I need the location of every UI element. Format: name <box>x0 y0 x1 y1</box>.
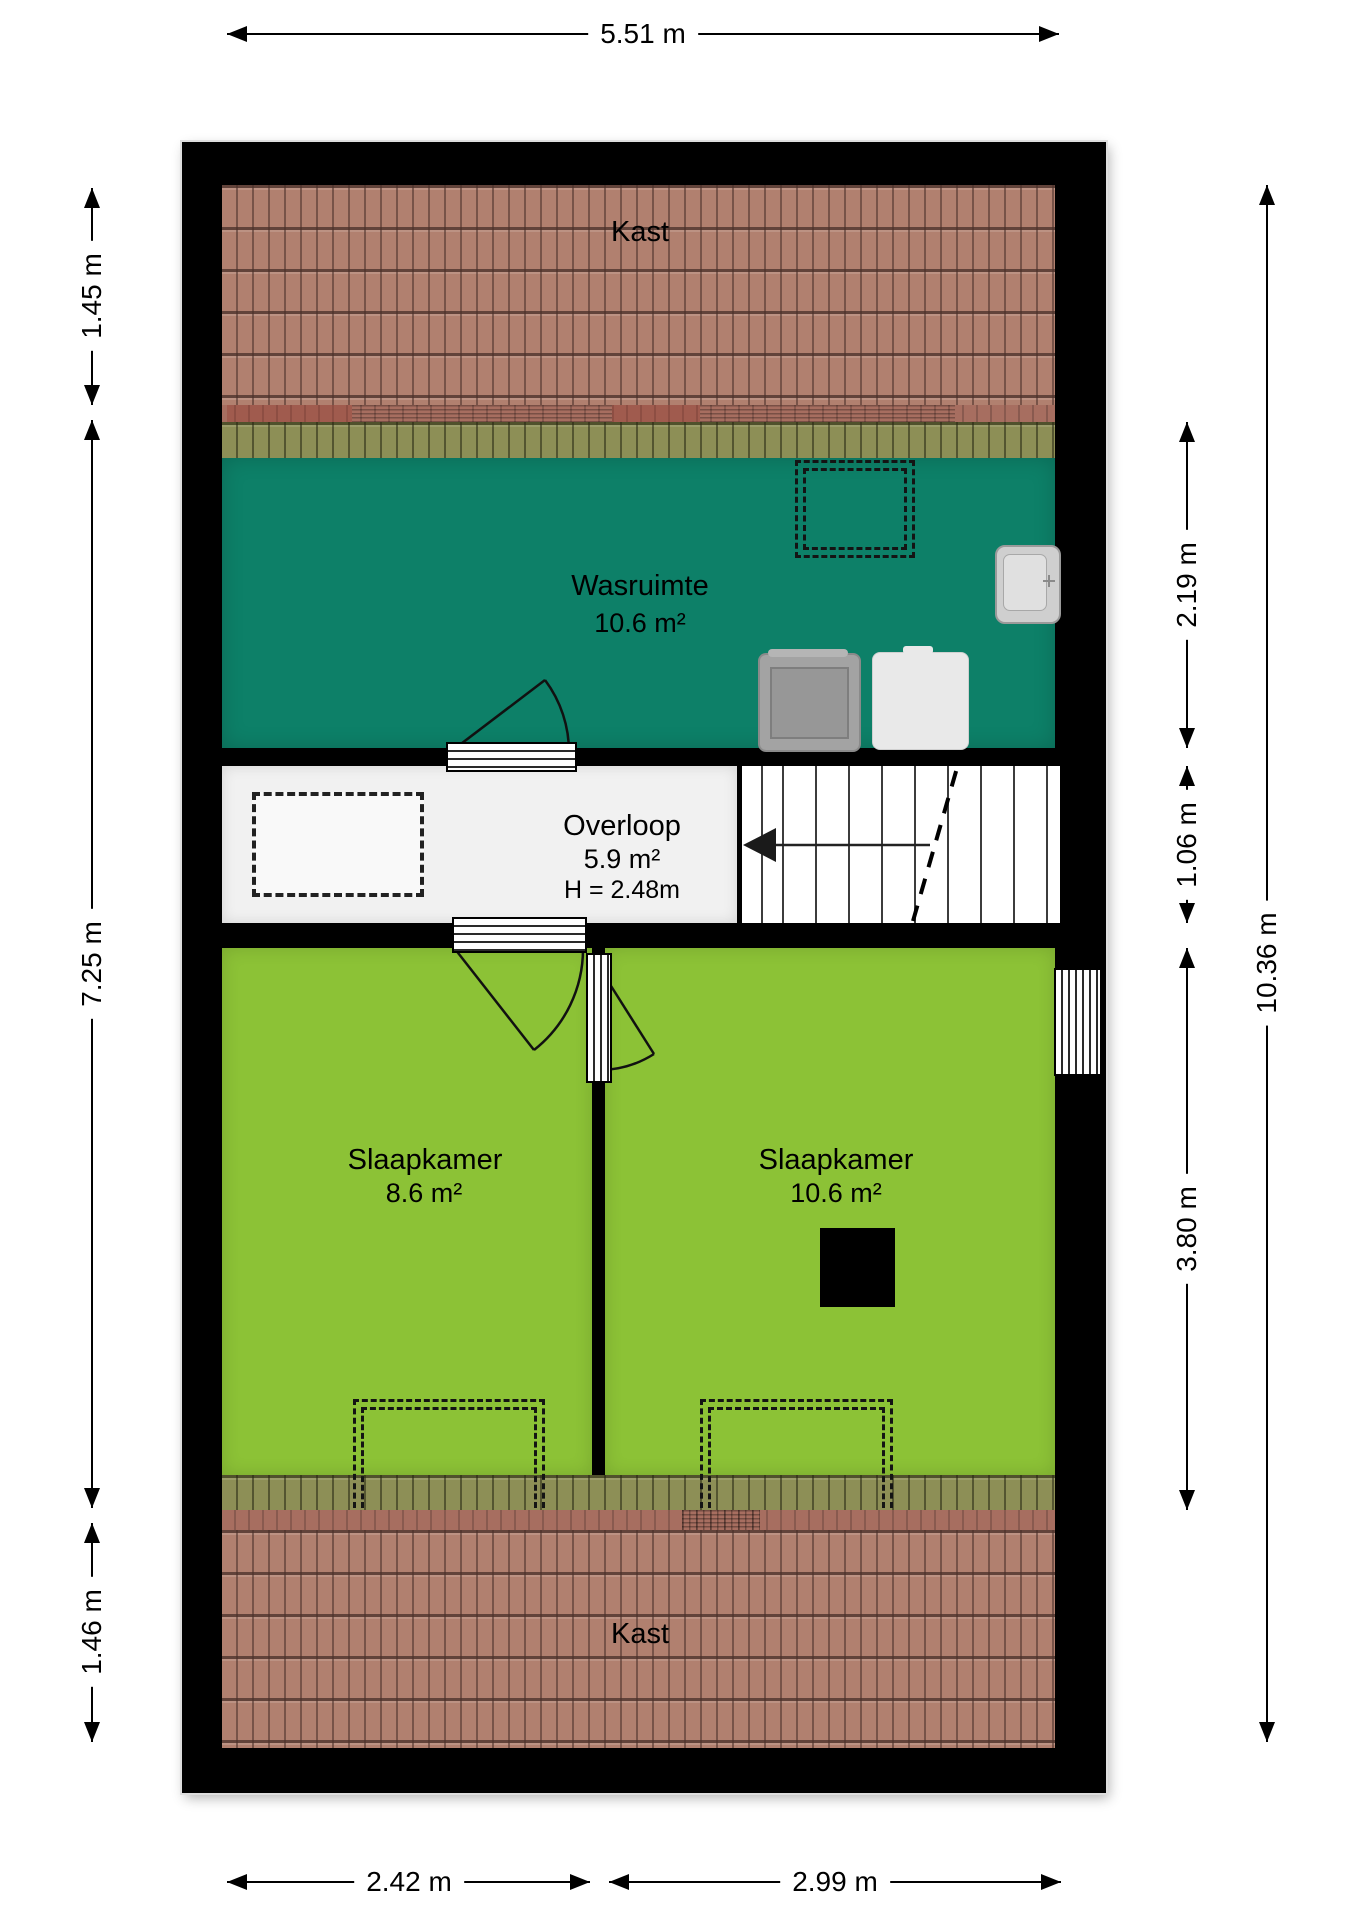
dimension-label: 2.42 m <box>354 1864 464 1900</box>
dormer-dashed-outline-right <box>700 1399 893 1508</box>
washing-machine-drum <box>770 667 849 739</box>
sink <box>995 545 1061 624</box>
boiler <box>872 652 969 750</box>
slaapkamer-right-door-sill <box>586 953 612 1083</box>
dimension-label: 7.25 m <box>74 909 110 1019</box>
dormer-dashed-outline-left <box>353 1399 545 1508</box>
room-area-slaapkamer-right: 10.6 m² <box>790 1180 882 1207</box>
roof-strip-texture <box>352 405 612 422</box>
room-slaapkamer-left <box>222 948 592 1475</box>
roof-strip-texture <box>700 405 955 422</box>
window <box>1054 968 1102 1076</box>
room-label-kast-top: Kast <box>611 218 669 247</box>
roof-band-top <box>222 422 1055 458</box>
room-label-overloop: Overloop <box>563 812 681 841</box>
room-slaapkamer-right <box>605 948 1055 1475</box>
room-area-overloop: 5.9 m² <box>584 846 661 873</box>
dimension-label: 1.06 m <box>1169 790 1205 900</box>
boiler-cap <box>903 646 933 654</box>
sink-basin <box>1003 554 1047 611</box>
dimension-label: 1.46 m <box>74 1577 110 1687</box>
room-label-slaapkamer-right: Slaapkamer <box>759 1146 914 1175</box>
dimension-label: 2.19 m <box>1169 530 1205 640</box>
room-height-overloop: H = 2.48m <box>564 878 680 903</box>
room-label-wasruimte: Wasruimte <box>571 572 709 601</box>
roof-strip-patch <box>612 405 700 422</box>
reduced-headroom-dashed-outline <box>252 792 424 897</box>
dimension-label: 5.51 m <box>588 16 698 52</box>
floorplan-canvas: Kast Wasruimte 10.6 m² Overloop 5.9 m² H… <box>0 0 1358 1920</box>
room-label-kast-bottom: Kast <box>611 1620 669 1649</box>
room-label-slaapkamer-left: Slaapkamer <box>348 1146 503 1175</box>
dimension-label: 3.80 m <box>1169 1174 1205 1284</box>
flue-block <box>820 1228 895 1307</box>
wasruimte-door-sill <box>446 742 577 772</box>
washing-machine-panel <box>768 649 848 657</box>
slaapkamer-left-door-sill <box>452 917 587 953</box>
roof-band-bottom <box>222 1475 1055 1510</box>
faucet-icon <box>1048 575 1050 587</box>
dimension-label: 1.45 m <box>74 241 110 351</box>
dimension-label: 2.99 m <box>780 1864 890 1900</box>
staircase <box>737 766 1060 923</box>
washing-machine <box>758 653 861 752</box>
dimension-label: 10.36 m <box>1249 900 1285 1025</box>
room-area-slaapkamer-left: 8.6 m² <box>386 1180 463 1207</box>
roof-strip-texture <box>682 1510 760 1530</box>
room-area-wasruimte: 10.6 m² <box>594 610 686 637</box>
skylight-dashed-outline <box>795 460 915 558</box>
roof-strip-patch <box>227 405 352 422</box>
roof-strip-bottom <box>222 1510 1055 1530</box>
